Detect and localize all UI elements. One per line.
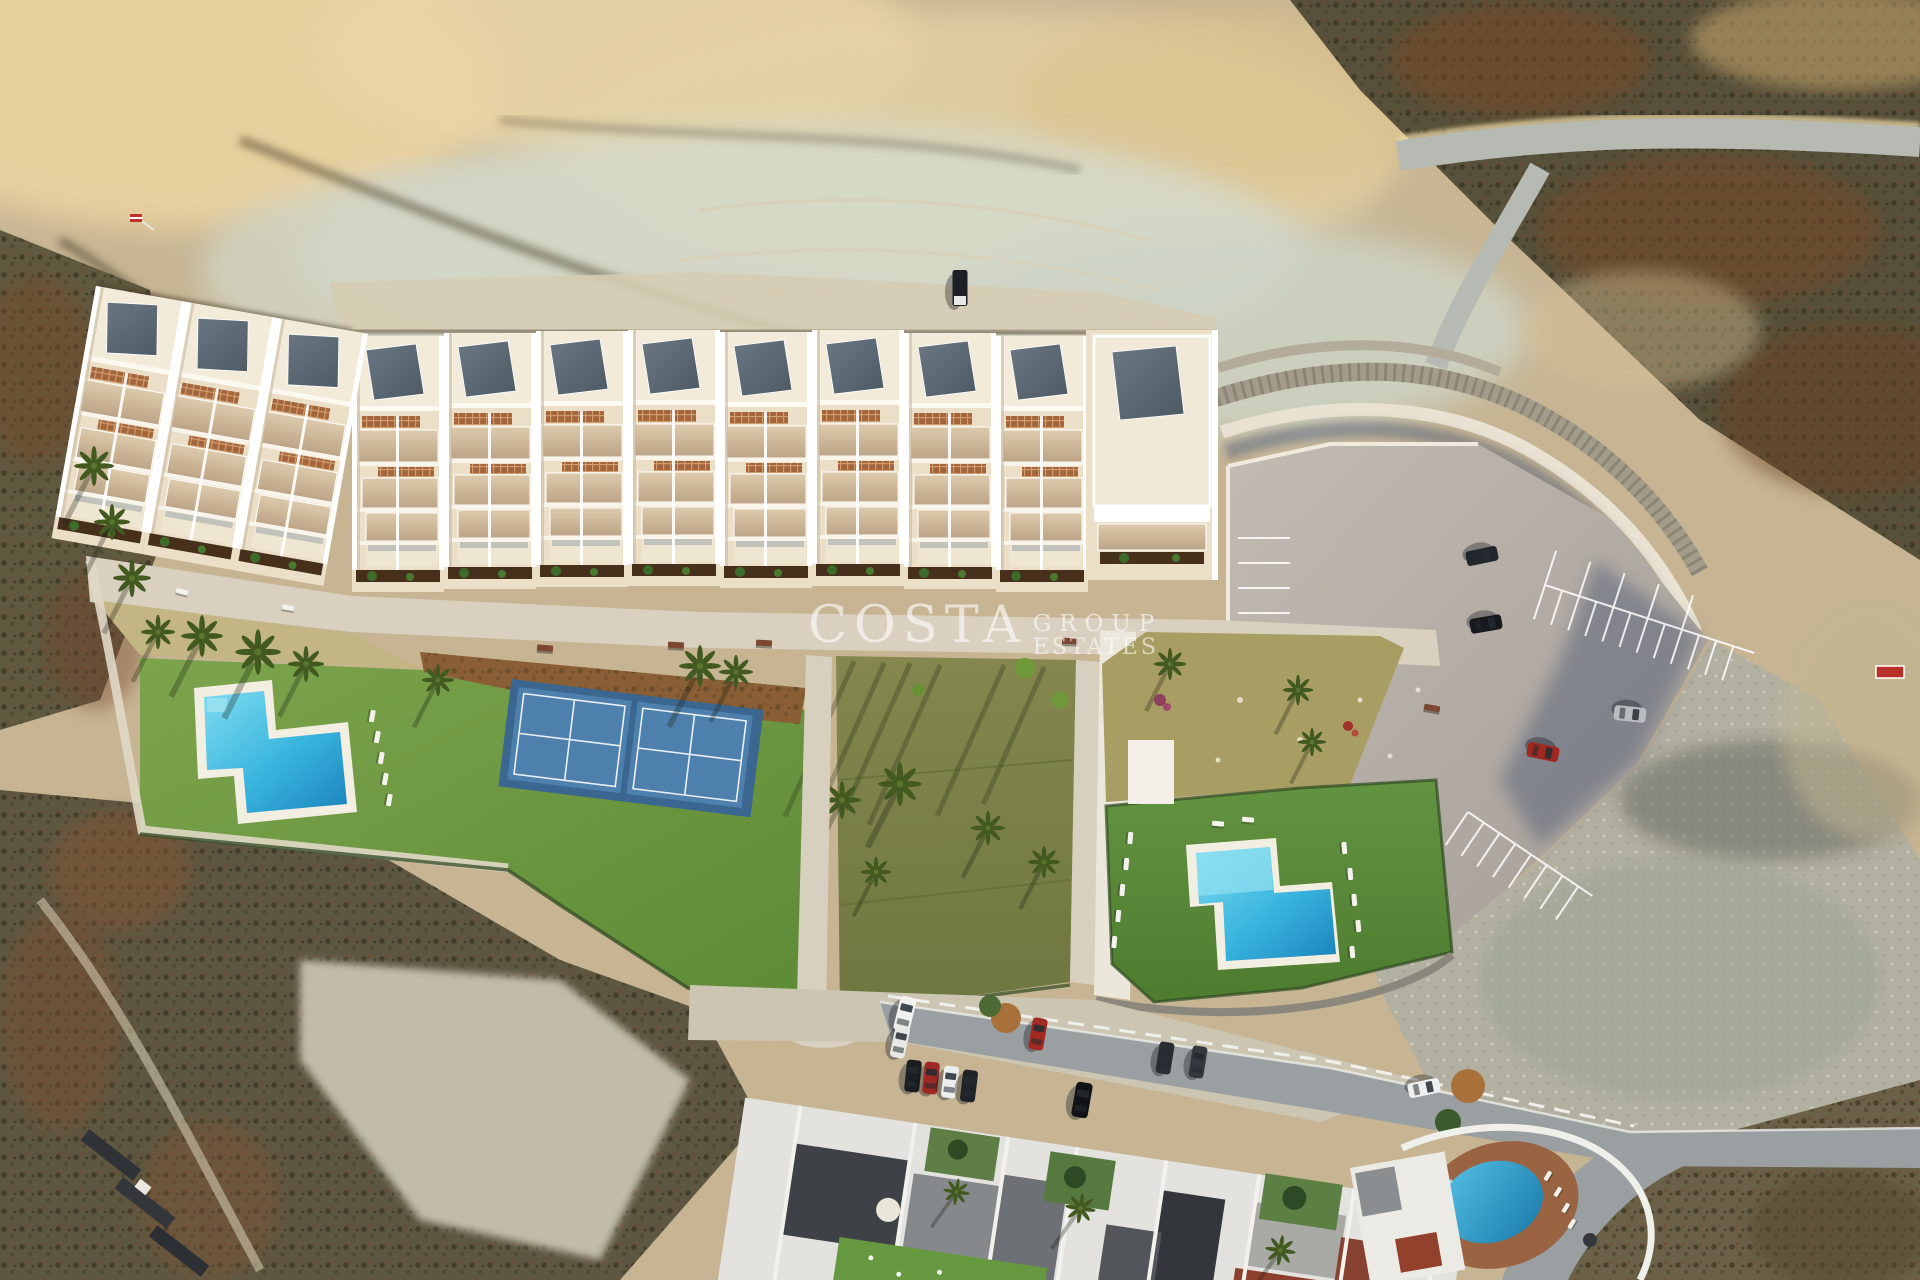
building-left-block [52,286,368,586]
building-unit [904,333,996,589]
sign-right-edge [1876,666,1904,678]
building-unit [720,332,812,588]
building-unit [628,330,720,586]
apartment-building [52,286,1218,592]
bench [668,642,684,651]
aerial-render-photo: COSTA GROUP ESTATES [0,0,1920,1280]
bench [537,644,554,653]
building-unit [352,336,444,592]
building-unit [444,333,536,589]
building-unit [536,331,628,587]
bench [1062,638,1078,647]
bench [756,640,772,649]
building-unit [996,336,1088,592]
entrance-pavilion [1128,740,1174,804]
aerial-render-canvas [0,0,1920,1280]
building-unit [812,330,904,586]
autumn-tree [1451,1069,1485,1103]
building-right-block [1086,330,1218,580]
building-main-row [352,330,1088,592]
